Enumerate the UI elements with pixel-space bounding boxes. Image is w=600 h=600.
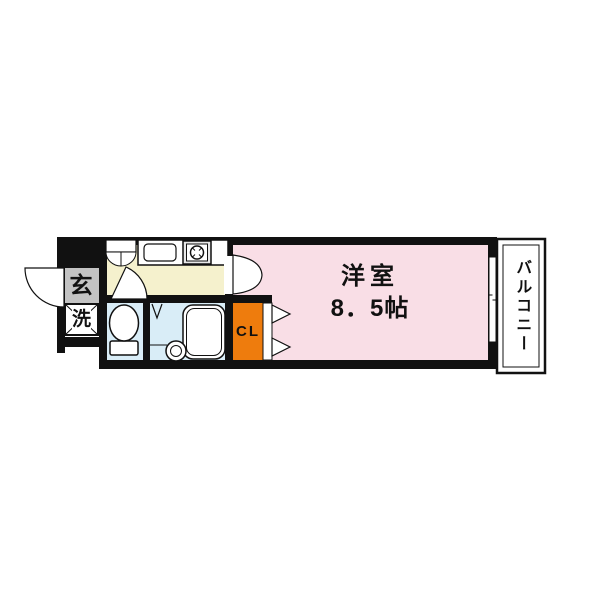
washing-machine-icon: [65, 304, 98, 335]
wall-block-top-left: [57, 237, 105, 268]
balcony-outline: [497, 239, 545, 373]
toilet-icon: [110, 305, 139, 355]
wall-left-column-bottom: [57, 337, 105, 347]
bathtub-icon: [183, 305, 225, 359]
kitchen-cabinet-icon: [106, 240, 136, 266]
stove-icon: [183, 241, 211, 264]
floor-plan-drawing: [0, 0, 600, 600]
entrance-door-swing-icon: [25, 268, 64, 307]
balcony: [497, 239, 545, 373]
window: [489, 257, 496, 342]
kitchen-sink-icon: [144, 244, 176, 261]
wall-toilet-bath: [143, 295, 150, 369]
washbasin-icon: [166, 341, 186, 361]
wall-bottom: [99, 360, 497, 369]
floor-plan: 玄 洗 洋室 8．5帖 CL バルコニー: [0, 0, 600, 600]
closet-door-panel: [263, 303, 272, 360]
closet: [233, 303, 263, 360]
